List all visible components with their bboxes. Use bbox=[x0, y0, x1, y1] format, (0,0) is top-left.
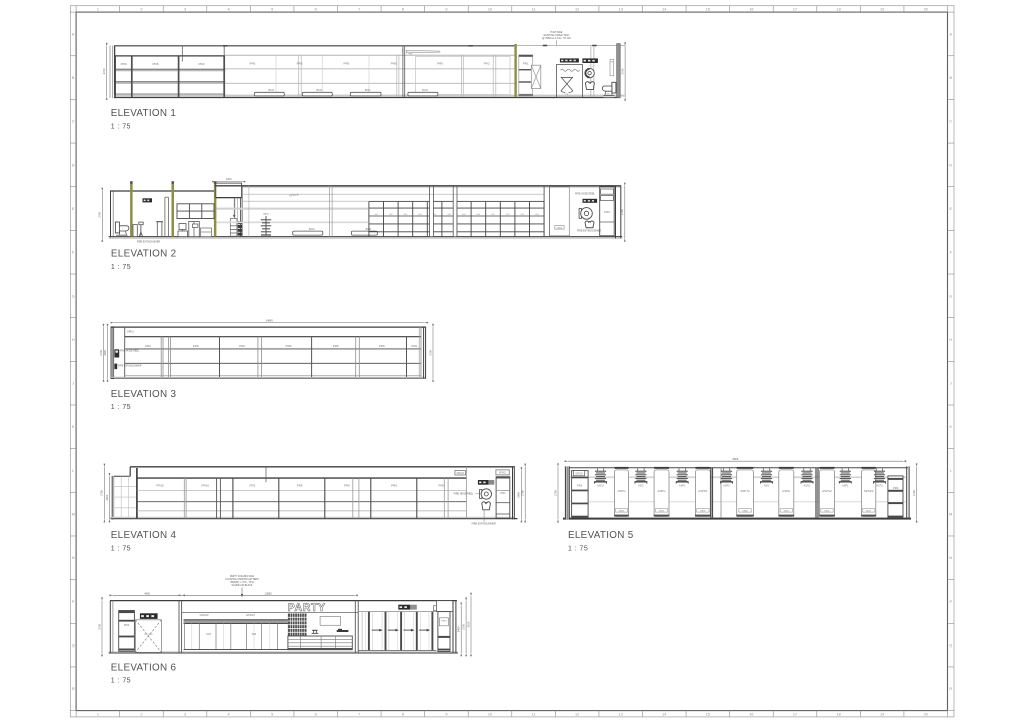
svg-text:PR2: PR2 bbox=[198, 62, 204, 66]
svg-text:15: 15 bbox=[706, 713, 710, 717]
svg-text:ELEVATION 5: ELEVATION 5 bbox=[568, 530, 634, 541]
svg-text:S04: S04 bbox=[252, 632, 257, 636]
svg-text:ASPP1: ASPP1 bbox=[698, 489, 708, 493]
svg-text:N: N bbox=[949, 556, 952, 560]
svg-text:13: 13 bbox=[619, 713, 623, 717]
svg-text:PR16: PR16 bbox=[201, 484, 209, 488]
svg-text:K: K bbox=[949, 425, 952, 429]
svg-text:FIRE EXTINGUISHER: FIRE EXTINGUISHER bbox=[118, 365, 142, 367]
svg-text:BCD: BCD bbox=[269, 88, 275, 92]
svg-text:AST2: AST2 bbox=[876, 483, 883, 487]
svg-text:J: J bbox=[950, 382, 952, 386]
svg-text:PR6: PR6 bbox=[379, 344, 385, 348]
svg-text:8: 8 bbox=[402, 713, 404, 717]
svg-text:G02: G02 bbox=[389, 214, 393, 216]
svg-text:16: 16 bbox=[749, 713, 753, 717]
svg-text:PR6: PR6 bbox=[297, 62, 303, 66]
svg-text:19: 19 bbox=[880, 7, 884, 11]
svg-text:17: 17 bbox=[793, 713, 797, 717]
svg-text:1200: 1200 bbox=[226, 178, 232, 181]
svg-text:11: 11 bbox=[532, 713, 536, 717]
svg-text:ASPG2: ASPG2 bbox=[822, 489, 832, 493]
svg-text:G01: G01 bbox=[491, 214, 495, 216]
svg-text:BCD: BCD bbox=[309, 227, 315, 231]
svg-text:N: N bbox=[72, 556, 75, 560]
svg-text:ASPG: ASPG bbox=[658, 489, 667, 493]
svg-text:14045: 14045 bbox=[266, 320, 274, 323]
svg-text:Q: Q bbox=[949, 644, 952, 648]
svg-text:1 : 75: 1 : 75 bbox=[111, 124, 131, 131]
svg-text:1 : 75: 1 : 75 bbox=[111, 678, 131, 685]
svg-text:PR6: PR6 bbox=[604, 210, 610, 214]
svg-text:PR6: PR6 bbox=[437, 62, 443, 66]
svg-text:1 : 75: 1 : 75 bbox=[111, 264, 131, 271]
svg-text:PR6: PR6 bbox=[893, 486, 899, 490]
svg-text:G02: G02 bbox=[447, 214, 451, 216]
svg-text:SILVER with BLACK: SILVER with BLACK bbox=[232, 584, 253, 587]
svg-text:ASG2: ASG2 bbox=[597, 483, 604, 487]
svg-text:2400: 2400 bbox=[105, 494, 109, 500]
svg-text:D: D bbox=[949, 163, 952, 167]
svg-text:R: R bbox=[949, 687, 952, 691]
svg-text:7: 7 bbox=[358, 713, 360, 717]
svg-text:2700: 2700 bbox=[521, 490, 525, 496]
svg-text:E: E bbox=[949, 207, 952, 211]
svg-text:S04: S04 bbox=[206, 632, 211, 636]
svg-text:G: G bbox=[72, 294, 75, 298]
svg-text:PR6: PR6 bbox=[193, 344, 199, 348]
svg-text:M: M bbox=[72, 513, 75, 517]
svg-text:ASG: ASG bbox=[764, 483, 769, 487]
svg-text:FIRE EXTINGUISHER: FIRE EXTINGUISHER bbox=[472, 523, 496, 526]
svg-text:14: 14 bbox=[662, 713, 666, 717]
svg-text:DB02: DB02 bbox=[619, 510, 625, 512]
svg-text:G04: G04 bbox=[535, 214, 539, 216]
svg-text:2400: 2400 bbox=[457, 626, 461, 632]
svg-text:12: 12 bbox=[575, 713, 579, 717]
svg-text:Q: Q bbox=[72, 644, 75, 648]
svg-text:ELEVATION 2: ELEVATION 2 bbox=[111, 249, 176, 260]
svg-text:G03: G03 bbox=[462, 214, 466, 216]
svg-text:PR2: PR2 bbox=[145, 344, 151, 348]
svg-text:9: 9 bbox=[445, 7, 447, 11]
svg-text:2700: 2700 bbox=[99, 349, 103, 355]
svg-text:PR6: PR6 bbox=[344, 484, 350, 488]
svg-text:G03: G03 bbox=[404, 214, 408, 216]
svg-text:M: M bbox=[949, 513, 952, 517]
svg-text:2400: 2400 bbox=[517, 491, 521, 497]
svg-text:2700: 2700 bbox=[98, 211, 102, 217]
svg-text:1 : 75: 1 : 75 bbox=[111, 546, 131, 553]
svg-text:10: 10 bbox=[488, 7, 492, 11]
svg-text:SPGP2: SPGP2 bbox=[864, 489, 874, 493]
svg-text:G01: G01 bbox=[374, 214, 378, 216]
svg-text:4060: 4060 bbox=[144, 592, 150, 595]
svg-text:2: 2 bbox=[140, 7, 142, 11]
svg-text:2700: 2700 bbox=[461, 623, 465, 629]
svg-text:G02: G02 bbox=[506, 214, 510, 216]
svg-text:3500(W) x 1 PC., 75 W: 3500(W) x 1 PC., 75 W bbox=[230, 582, 254, 584]
svg-text:R: R bbox=[72, 687, 75, 691]
svg-text:PR6: PR6 bbox=[343, 62, 349, 66]
svg-text:18: 18 bbox=[836, 7, 840, 11]
svg-text:1: 1 bbox=[97, 713, 99, 717]
svg-text:PR6: PR6 bbox=[239, 344, 245, 348]
svg-text:PR2: PR2 bbox=[484, 62, 490, 66]
svg-text:PR6: PR6 bbox=[438, 484, 444, 488]
svg-text:2700: 2700 bbox=[100, 490, 104, 496]
svg-text:E: E bbox=[72, 207, 75, 211]
svg-text:1 : 75: 1 : 75 bbox=[111, 404, 131, 411]
svg-text:PARTY: PARTY bbox=[288, 602, 326, 614]
svg-text:5: 5 bbox=[271, 7, 273, 11]
svg-text:8: 8 bbox=[402, 7, 404, 11]
svg-text:FIRE EXTINGUISHER: FIRE EXTINGUISHER bbox=[137, 241, 160, 243]
svg-text:PR6: PR6 bbox=[286, 344, 292, 348]
svg-text:1 : 75: 1 : 75 bbox=[568, 546, 588, 553]
svg-text:DB03: DB03 bbox=[557, 227, 563, 229]
svg-text:FIRE HOSE REEL: FIRE HOSE REEL bbox=[575, 192, 595, 195]
svg-text:SPG01: SPG01 bbox=[499, 473, 507, 475]
svg-text:DB02: DB02 bbox=[784, 510, 790, 512]
svg-text:19: 19 bbox=[880, 713, 884, 717]
svg-text:3100: 3100 bbox=[466, 621, 470, 627]
svg-text:9: 9 bbox=[445, 713, 447, 717]
svg-text:B: B bbox=[949, 76, 952, 80]
svg-text:1: 1 bbox=[97, 7, 99, 11]
svg-text:5: 5 bbox=[271, 713, 273, 717]
svg-text:PB13: PB13 bbox=[441, 620, 447, 622]
svg-text:@ 3350mm A.F.F.L. TO U/S: @ 3350mm A.F.F.L. TO U/S bbox=[542, 37, 571, 40]
svg-text:F: F bbox=[72, 251, 75, 255]
svg-text:PR6: PR6 bbox=[333, 344, 339, 348]
svg-text:2: 2 bbox=[140, 713, 142, 717]
svg-text:FLOATING SHADOW LETTERS: FLOATING SHADOW LETTERS bbox=[225, 578, 259, 581]
svg-text:PR5: PR5 bbox=[577, 483, 583, 487]
svg-text:ELEVATION 1: ELEVATION 1 bbox=[111, 108, 177, 119]
svg-text:8906: 8906 bbox=[733, 458, 739, 461]
svg-text:ASPT2: ASPT2 bbox=[740, 489, 750, 493]
svg-text:4: 4 bbox=[228, 7, 230, 11]
svg-text:6: 6 bbox=[315, 713, 317, 717]
svg-text:11: 11 bbox=[532, 7, 536, 11]
svg-text:C: C bbox=[72, 120, 75, 124]
svg-text:F: F bbox=[950, 251, 953, 255]
svg-text:6: 6 bbox=[315, 7, 317, 11]
svg-text:DB02: DB02 bbox=[742, 510, 748, 512]
svg-text:3: 3 bbox=[184, 713, 186, 717]
svg-text:L: L bbox=[72, 469, 74, 473]
svg-text:DB02: DB02 bbox=[659, 510, 665, 512]
svg-text:20: 20 bbox=[924, 713, 928, 717]
svg-text:AS12: AS12 bbox=[866, 509, 872, 512]
svg-text:2700: 2700 bbox=[102, 68, 106, 74]
svg-text:ASP2: ASP2 bbox=[723, 483, 730, 487]
svg-text:PR6: PR6 bbox=[391, 62, 397, 66]
svg-text:PARTY COLUMN SIGN: PARTY COLUMN SIGN bbox=[230, 575, 255, 578]
svg-text:PR6: PR6 bbox=[249, 62, 255, 66]
svg-text:PR6: PR6 bbox=[391, 484, 397, 488]
svg-text:PR6: PR6 bbox=[297, 484, 303, 488]
svg-text:ASP1: ASP1 bbox=[679, 483, 686, 487]
svg-text:J: J bbox=[72, 382, 74, 386]
svg-text:K: K bbox=[72, 425, 75, 429]
svg-text:HIGH SIDE: HIGH SIDE bbox=[551, 32, 563, 34]
svg-text:OPG1: OPG1 bbox=[127, 330, 134, 333]
svg-text:PR1: PR1 bbox=[523, 62, 529, 66]
svg-text:4: 4 bbox=[228, 713, 230, 717]
svg-text:2700: 2700 bbox=[428, 349, 432, 355]
svg-text:ASG: ASG bbox=[638, 483, 643, 487]
svg-text:PR6: PR6 bbox=[121, 62, 127, 66]
svg-text:20: 20 bbox=[924, 7, 928, 11]
svg-text:ASPG: ASPG bbox=[782, 489, 791, 493]
svg-text:CPL/SB2: CPL/SB2 bbox=[144, 634, 153, 636]
svg-text:2700: 2700 bbox=[97, 623, 101, 629]
svg-text:P: P bbox=[949, 600, 952, 604]
svg-text:12: 12 bbox=[575, 7, 579, 11]
svg-text:ELEVATION 6: ELEVATION 6 bbox=[111, 662, 177, 673]
svg-text:ELEVATION 3: ELEVATION 3 bbox=[111, 389, 177, 400]
svg-text:2700: 2700 bbox=[912, 490, 916, 496]
svg-text:G: G bbox=[949, 294, 952, 298]
svg-text:2700: 2700 bbox=[620, 209, 624, 215]
svg-text:ASPG: ASPG bbox=[617, 489, 626, 493]
svg-text:10: 10 bbox=[488, 713, 492, 717]
svg-text:G03: G03 bbox=[520, 214, 524, 216]
svg-text:SPG05: SPG05 bbox=[575, 474, 583, 476]
svg-text:BCD: BCD bbox=[365, 88, 371, 92]
svg-text:7: 7 bbox=[358, 7, 360, 11]
svg-text:15: 15 bbox=[706, 7, 710, 11]
svg-text:2400: 2400 bbox=[103, 349, 107, 355]
svg-text:DB02: DB02 bbox=[700, 510, 706, 512]
svg-text:GPR20: GPR20 bbox=[200, 613, 209, 617]
svg-text:H: H bbox=[72, 338, 75, 342]
svg-text:14: 14 bbox=[662, 7, 666, 11]
svg-text:L: L bbox=[950, 469, 952, 473]
svg-text:ELEVATION 4: ELEVATION 4 bbox=[111, 530, 177, 541]
svg-text:H: H bbox=[949, 338, 952, 342]
svg-text:C: C bbox=[949, 120, 952, 124]
svg-text:G04: G04 bbox=[477, 214, 481, 216]
svg-text:3: 3 bbox=[184, 7, 186, 11]
svg-text:2700: 2700 bbox=[620, 68, 624, 74]
svg-text:GPR19: GPR19 bbox=[246, 613, 255, 617]
svg-text:EXISTING CABLE TRAY: EXISTING CABLE TRAY bbox=[544, 34, 570, 37]
svg-text:G04: G04 bbox=[418, 214, 422, 216]
svg-text:CPU-L4: CPU-L4 bbox=[289, 192, 299, 197]
svg-text:PR2: PR2 bbox=[249, 484, 255, 488]
svg-text:13: 13 bbox=[619, 7, 623, 11]
svg-text:PR3: PR3 bbox=[124, 623, 130, 627]
svg-text:FIRE EXTINGUISHER: FIRE EXTINGUISHER bbox=[577, 230, 601, 233]
svg-text:P: P bbox=[72, 600, 75, 604]
svg-text:FIRE HOSE REEL: FIRE HOSE REEL bbox=[120, 351, 140, 353]
svg-text:PR6: PR6 bbox=[411, 344, 417, 348]
svg-text:B: B bbox=[72, 76, 75, 80]
svg-text:FIRE HOSE REEL: FIRE HOSE REEL bbox=[454, 493, 474, 496]
svg-text:D: D bbox=[72, 163, 75, 167]
svg-text:BCD: BCD bbox=[422, 88, 428, 92]
svg-text:PR6: PR6 bbox=[152, 62, 158, 66]
svg-text:13850: 13850 bbox=[265, 592, 273, 595]
svg-text:PR1: PR1 bbox=[500, 491, 506, 495]
svg-text:ASG1: ASG1 bbox=[804, 483, 811, 487]
svg-text:16: 16 bbox=[749, 7, 753, 11]
svg-text:BCD: BCD bbox=[317, 88, 323, 92]
svg-text:ASP1: ASP1 bbox=[842, 483, 849, 487]
svg-text:DB02: DB02 bbox=[824, 510, 830, 512]
svg-text:17: 17 bbox=[793, 7, 797, 11]
svg-text:18: 18 bbox=[836, 713, 840, 717]
svg-text:A: A bbox=[949, 32, 952, 36]
svg-text:A: A bbox=[72, 32, 75, 36]
svg-text:PB 5: PB 5 bbox=[264, 214, 270, 216]
svg-text:2700: 2700 bbox=[553, 490, 557, 496]
svg-text:PR16: PR16 bbox=[156, 484, 164, 488]
svg-text:SPG02: SPG02 bbox=[456, 473, 464, 475]
